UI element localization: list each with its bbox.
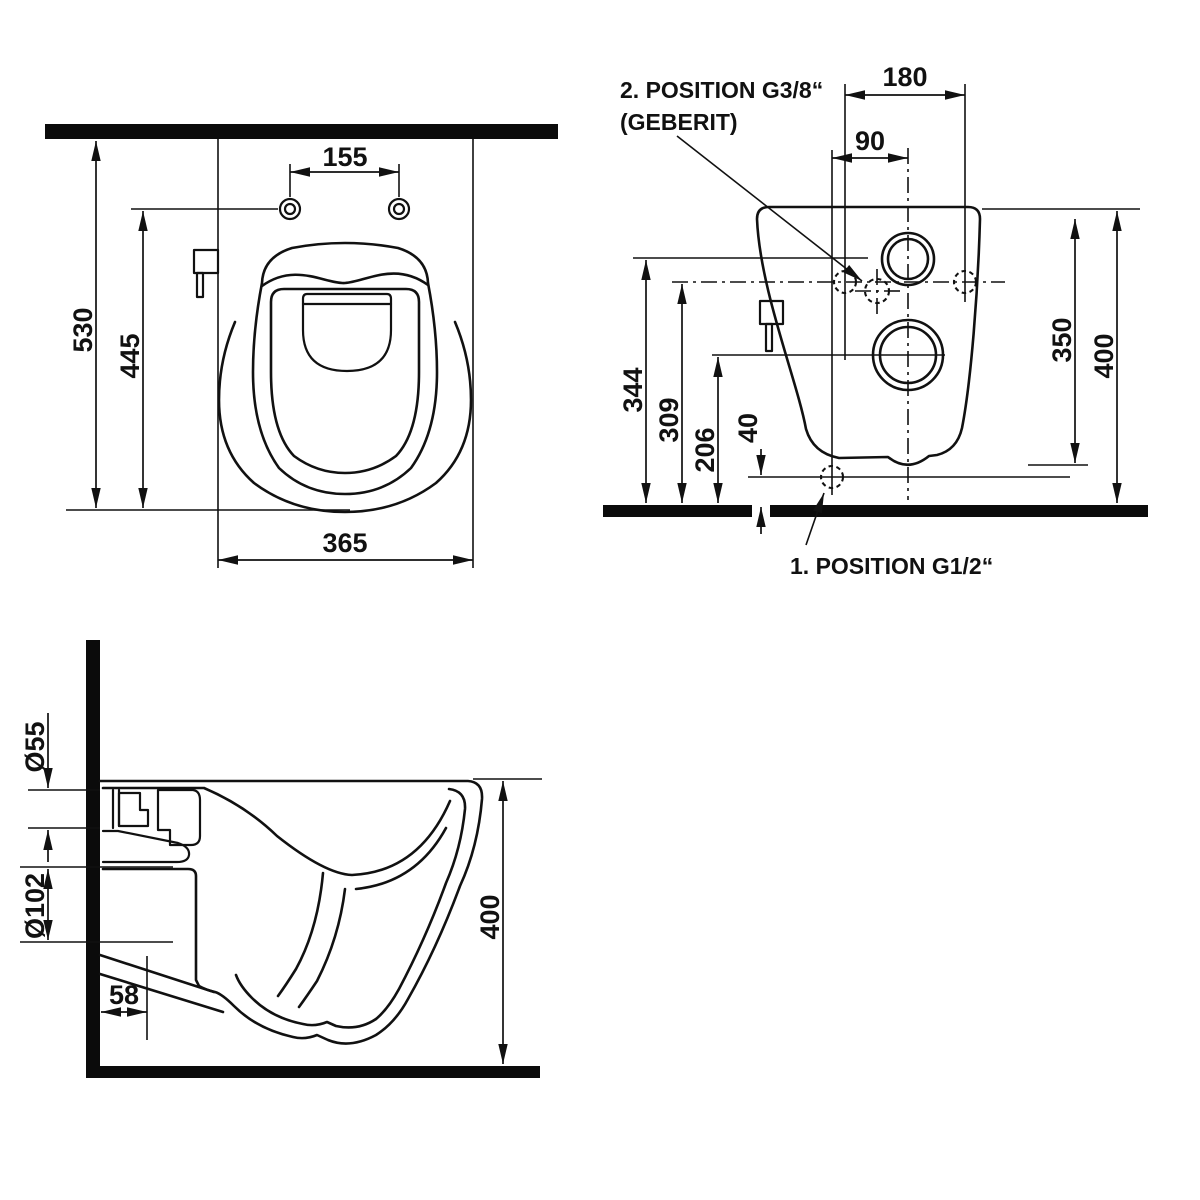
section-trap-front: [278, 873, 323, 996]
side-section-view: Ø55 Ø102 58 400: [20, 640, 542, 1078]
floor-bar: [603, 505, 1148, 517]
fixing-hole-left: [280, 199, 300, 219]
flush-channel: [103, 831, 189, 862]
section-bowl-shell: [356, 828, 446, 889]
label-position-g12: 1. POSITION G1/2“: [790, 553, 993, 579]
dim-text-180: 180: [882, 62, 927, 92]
toilet-dimension-drawing: 155 530 445 365: [0, 0, 1200, 1200]
dim-text-400-side: 400: [475, 894, 505, 939]
section-inner-rim: [376, 789, 465, 1019]
dim-text-58: 58: [109, 980, 139, 1010]
nozzle-body: [194, 250, 218, 273]
fixing-hole-left-inner: [285, 204, 295, 214]
dim-text-309: 309: [654, 397, 684, 442]
dim-text-445: 445: [115, 333, 145, 378]
seat-outline: [253, 243, 437, 494]
front-view: 180 90 344 309 206 40 350 400 2. POSITIO…: [603, 62, 1148, 579]
top-view: 155 530 445 365: [45, 124, 558, 568]
toilet-front-outline: [757, 207, 980, 465]
dim-text-155: 155: [322, 142, 367, 172]
label-position-g38: 2. POSITION G3/8“: [620, 77, 823, 103]
dim-text-365: 365: [322, 528, 367, 558]
spud-box: [119, 793, 148, 826]
dim-text-90: 90: [855, 126, 885, 156]
dim-text-d55: Ø55: [20, 721, 50, 772]
dim-text-206: 206: [690, 427, 720, 472]
nozzle-stem: [766, 324, 772, 351]
label-position-g38-geberit: (GEBERIT): [620, 109, 738, 135]
dim-text-40: 40: [733, 413, 763, 443]
section-sump-inner: [236, 975, 376, 1027]
dim-text-350: 350: [1047, 317, 1077, 362]
dim-text-344: 344: [618, 367, 648, 412]
leader-line-g12: [806, 493, 824, 545]
nozzle-stem: [197, 273, 203, 297]
technical-drawing-page: 155 530 445 365: [0, 0, 1200, 1200]
wall-bar: [45, 124, 558, 139]
wall-bar: [86, 640, 100, 1078]
dim-text-530: 530: [68, 307, 98, 352]
dim-text-400: 400: [1089, 333, 1119, 378]
dim-text-d102: Ø102: [20, 873, 50, 939]
fixing-hole-right-inner: [394, 204, 404, 214]
floor-bar: [86, 1066, 540, 1078]
flush-cavity: [158, 790, 200, 845]
fixing-hole-right: [389, 199, 409, 219]
